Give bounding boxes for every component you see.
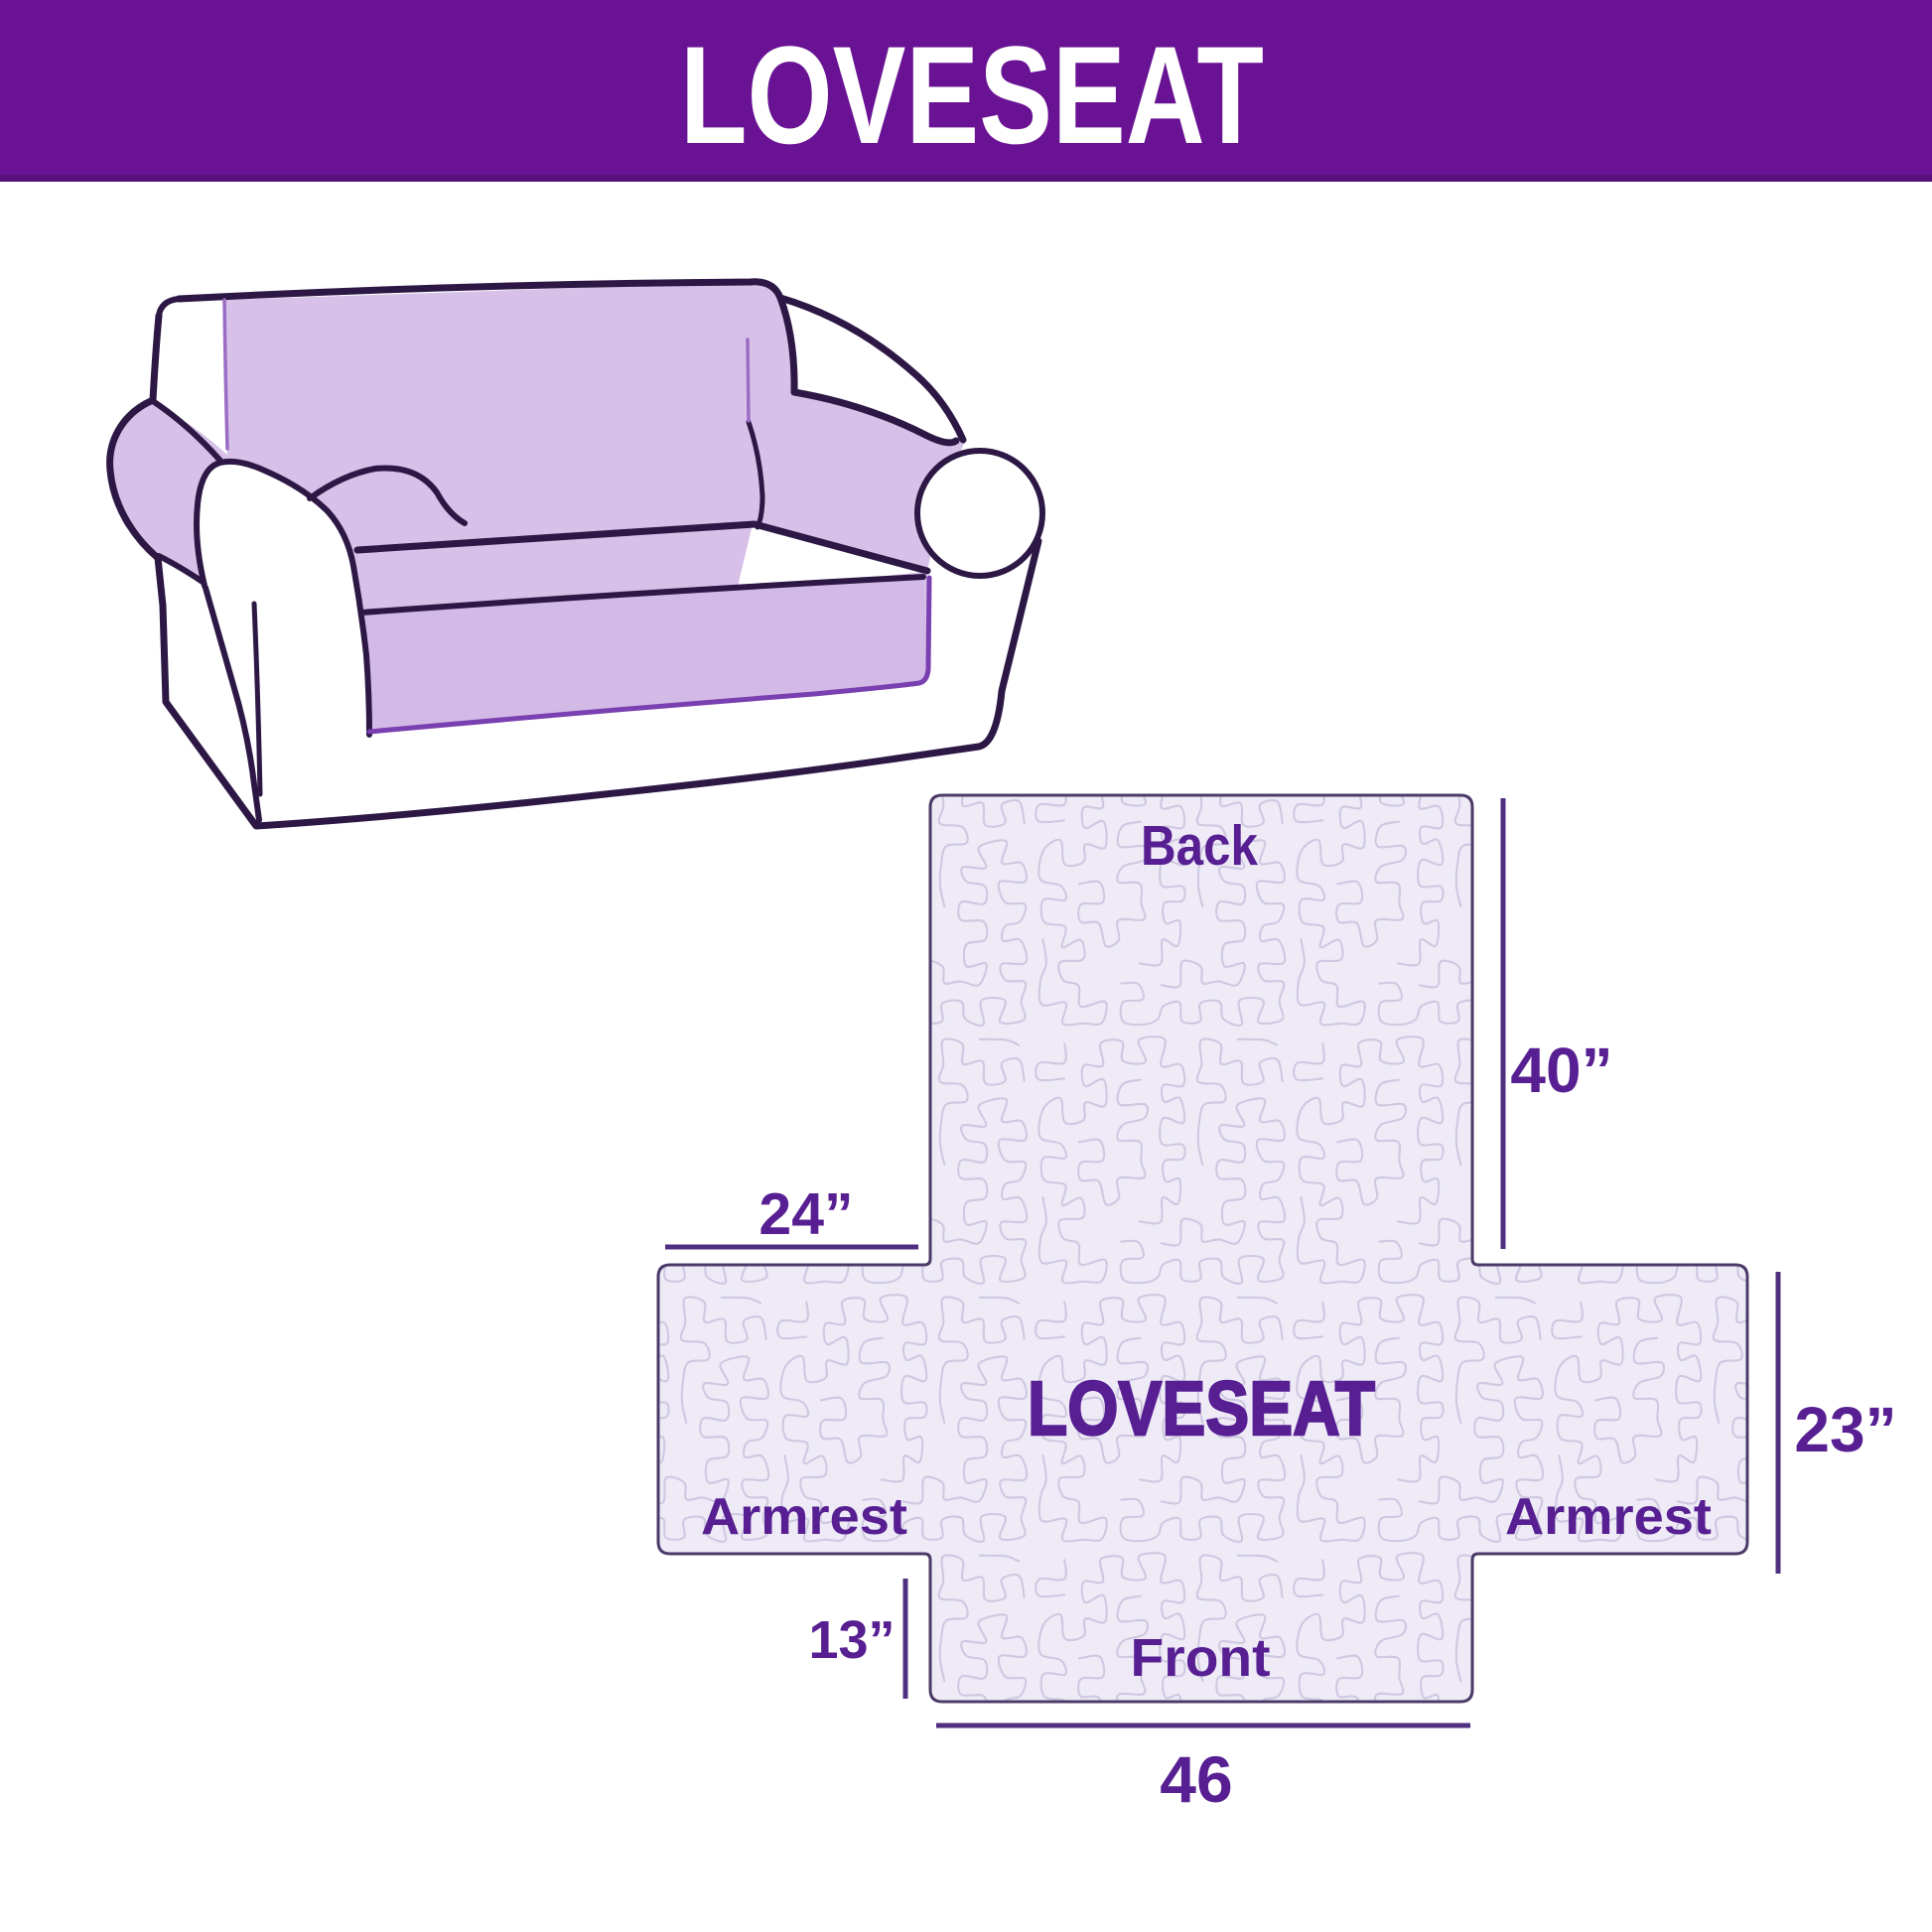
svg-text:LOVESEAT: LOVESEAT: [680, 17, 1264, 173]
svg-text:Back: Back: [1141, 814, 1258, 878]
svg-text:23”: 23”: [1794, 1394, 1896, 1465]
svg-text:Armrest: Armrest: [1505, 1488, 1712, 1546]
svg-text:40”: 40”: [1510, 1035, 1612, 1106]
svg-text:46: 46: [1160, 1742, 1232, 1816]
svg-text:13”: 13”: [808, 1610, 895, 1670]
svg-text:Front: Front: [1131, 1628, 1271, 1688]
svg-text:LOVESEAT: LOVESEAT: [1028, 1366, 1375, 1451]
svg-text:24”: 24”: [759, 1181, 853, 1247]
svg-text:Armrest: Armrest: [701, 1488, 907, 1546]
